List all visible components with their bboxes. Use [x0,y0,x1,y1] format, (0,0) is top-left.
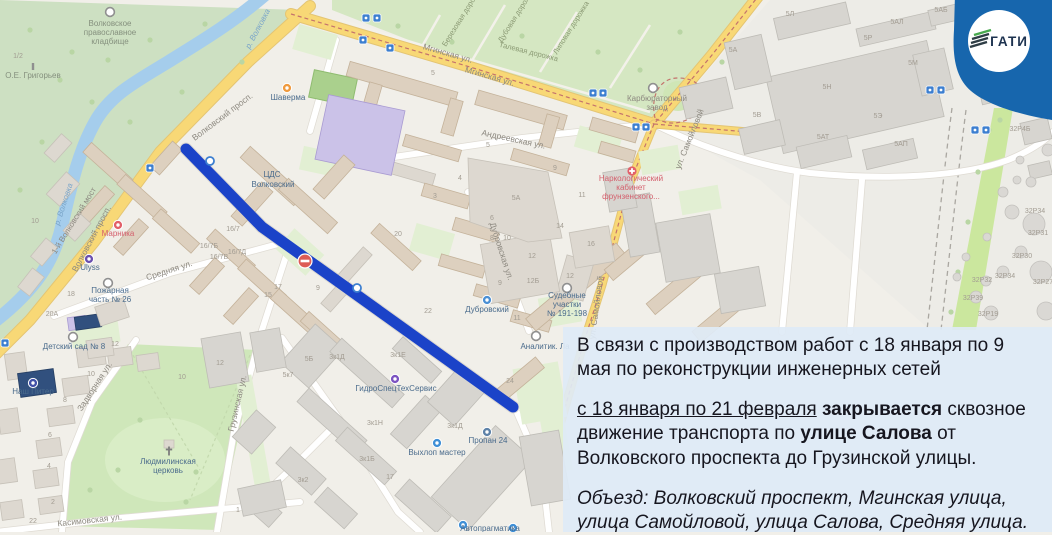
building [0,500,24,521]
map-label: Пропан 24 [469,436,509,445]
building-number: 22 [424,308,432,315]
building-number: 12Б [527,278,540,285]
announcement-box: В связи с производством работ с 18 январ… [563,327,1052,532]
building-number: 16/7Д [228,249,247,256]
building-number: 4 [47,463,51,470]
building [714,266,765,313]
building [47,405,75,426]
map-label: кабинет [616,183,646,192]
map-label: участки [553,300,581,309]
no-entry-icon [298,254,312,268]
building-number: 5М [908,60,918,67]
building-number: 16/7Б [200,243,219,250]
transport-stop-icon [982,126,990,134]
map-label: Автопрагматика [460,524,520,532]
transport-stop-icon [589,89,597,97]
transport-stop-icon [599,89,607,97]
building-number: 5Э [874,113,883,120]
transport-stop-icon [1,339,9,347]
building-number: 20А [46,311,59,318]
building-number: 12 [566,273,574,280]
poi-icon [282,83,291,92]
building-number: 2 [51,499,55,506]
transport-stop-icon [926,86,934,94]
building-number: 18 [67,291,75,298]
map-label: Судебные [548,291,586,300]
building-number: 3к1Н [367,420,383,427]
building-number: 16/7 [226,226,240,233]
building [250,328,286,373]
building-number: 32Р34 [995,273,1015,280]
building-number: 32Р27 [1033,279,1052,286]
map-label: Пожарная [91,286,129,295]
place-icon [69,333,78,342]
map-label: Людмилинская [140,457,196,466]
building [36,437,62,458]
building-number: 17 [386,474,394,481]
building-number: 32Р34 [1025,208,1045,215]
building-number: 12 [216,360,224,367]
building-number: 32Р19 [978,311,998,318]
building-number: 10 [503,235,511,242]
building-number: 5 [486,142,490,149]
announcement-segment: Объезд: Волковский проспект, Мгинская ул… [577,488,1028,533]
building-number: 6 [48,432,52,439]
building [0,458,18,485]
announcement-segment: В связи с производством работ с 18 январ… [577,335,1004,380]
transport-stop-icon [359,36,367,44]
building-number: 32Р39 [963,295,983,302]
building-number: 4 [458,175,462,182]
announcement-segment: улице Салова [800,423,932,444]
transport-stop-icon [632,123,640,131]
building-number: 1 [236,507,240,514]
map-label: Дубровский [465,305,509,314]
building-number: 6 [490,215,494,222]
building [136,353,160,372]
map-label: ЦДС [263,170,280,179]
monument-icon [32,63,34,70]
building-number: 5АТ [817,134,830,141]
building-number: 5АЛ [890,19,904,26]
building-number: 14 [556,223,564,230]
building-number: 3к1Б [359,456,375,463]
map-label: Детский сад № 8 [43,342,106,351]
building-number: 20 [394,231,402,238]
map-label: завод [646,103,668,112]
map-label: часть № 26 [89,295,132,304]
announcement-segment: закрывается [822,399,942,420]
building-number: 22 [29,518,37,525]
map-label: Марника [102,229,135,238]
building-number: 32Р31 [1028,230,1048,237]
building-number: 3 [433,193,437,200]
place-icon [106,8,115,17]
transport-stop-icon [937,86,945,94]
map-label: церковь [153,466,183,475]
building-number: 3к1Д [447,423,463,430]
map-label: Наш Питер [12,387,54,396]
transport-stop-icon [971,126,979,134]
transport-icon [353,284,361,292]
building [33,467,59,488]
building-number: 5В [753,112,762,119]
transport-stop-icon [146,164,154,172]
map-label: О.Е. Григорьев [5,71,61,80]
building-number: 10 [87,371,95,378]
map-label: Волковский [252,180,295,189]
building [656,214,721,283]
building-number: 3к1Е [390,352,406,359]
announcement-text: В связи с производством работ с 18 январ… [577,334,1038,535]
building-number: 5к7 [283,372,294,379]
map-label: кладбище [91,37,129,46]
building-number: 32Р32 [972,277,992,284]
building-number: 8 [490,235,494,242]
map-label: Выхлоп мастер [408,448,466,457]
transport-stop-icon [362,14,370,22]
place-icon [532,332,541,341]
building-number: 5АБ [934,7,948,14]
announcement-segment: с 18 января по 21 февраля [577,399,817,420]
place-icon [649,84,658,93]
poi-icon [482,295,491,304]
building-number: 11 [578,192,585,199]
building-number: 10 [31,218,39,225]
building-number: 3к2 [298,477,309,484]
building-number: 11 [513,315,520,322]
building-number: 5Л [786,11,795,18]
building-number: 5Н [823,84,832,91]
poi-icon [390,374,399,383]
building-number: 24 [506,378,514,385]
building-number: 5Б [305,356,314,363]
map-label: ГидроСпецТехСервис [355,384,436,393]
building-number: 9 [553,165,557,172]
map-label: православное [84,28,137,37]
building-number: 12 [528,253,536,260]
building-number: 1/2 [13,53,23,60]
map-label: Ulyss [80,263,100,272]
building-number: 9 [498,280,502,287]
building-number: 5А [729,47,738,54]
building-number: 32Р4Б [1010,126,1031,133]
building-number: 5А [512,195,521,202]
building-number: 5Р [864,35,873,42]
map-label: Волковское [89,19,133,28]
transport-icon [206,157,214,165]
transport-stop-icon [386,44,394,52]
building-number: 12 [111,341,119,348]
building [0,408,21,435]
map-label: Карбюраторный [627,94,687,103]
map-label: Наркологический [599,174,663,183]
map-label: фрунзенского... [602,192,660,201]
building-number: 15 [264,292,272,299]
building-number: 16/7В [210,254,229,261]
building-number: 5 [431,70,435,77]
building-number: 10 [178,374,186,381]
building-number: 8 [63,397,67,404]
building-number: 16 [587,241,595,248]
building-number: 5АП [894,141,908,148]
transport-stop-icon [642,123,650,131]
building-number: 32Р30 [1012,253,1032,260]
gati-logo-text: ГАТИ [990,34,1028,49]
map-label: Шаверма [271,93,306,102]
transport-stop-icon [373,14,381,22]
building-number: 9 [316,285,320,292]
building-number: 17 [274,284,282,291]
poi-icon [432,438,441,447]
map-label: № 191-198 [547,309,588,318]
building-number: 3к1Д [329,354,345,361]
